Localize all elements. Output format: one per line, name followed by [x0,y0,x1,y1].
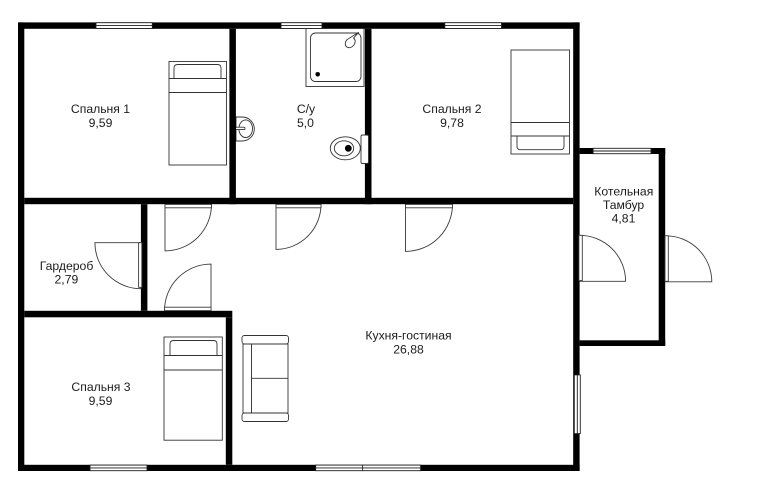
svg-text:Спальня 3: Спальня 3 [71,380,130,394]
svg-text:Котельная: Котельная [594,184,653,198]
svg-text:9,59: 9,59 [89,394,113,408]
svg-text:5,0: 5,0 [297,116,314,130]
svg-text:Гардероб: Гардероб [40,259,94,273]
svg-text:Кухня-гостиная: Кухня-гостиная [365,328,451,342]
svg-text:С/у: С/у [297,102,316,116]
svg-text:26,88: 26,88 [393,342,424,356]
svg-text:2,79: 2,79 [55,272,79,286]
svg-text:9,59: 9,59 [89,116,113,130]
svg-text:Тамбур: Тамбур [603,198,645,212]
svg-text:Спальня 2: Спальня 2 [422,102,481,116]
svg-text:4,81: 4,81 [612,211,636,225]
svg-text:Спальня 1: Спальня 1 [71,102,130,116]
svg-text:9,78: 9,78 [440,116,464,130]
